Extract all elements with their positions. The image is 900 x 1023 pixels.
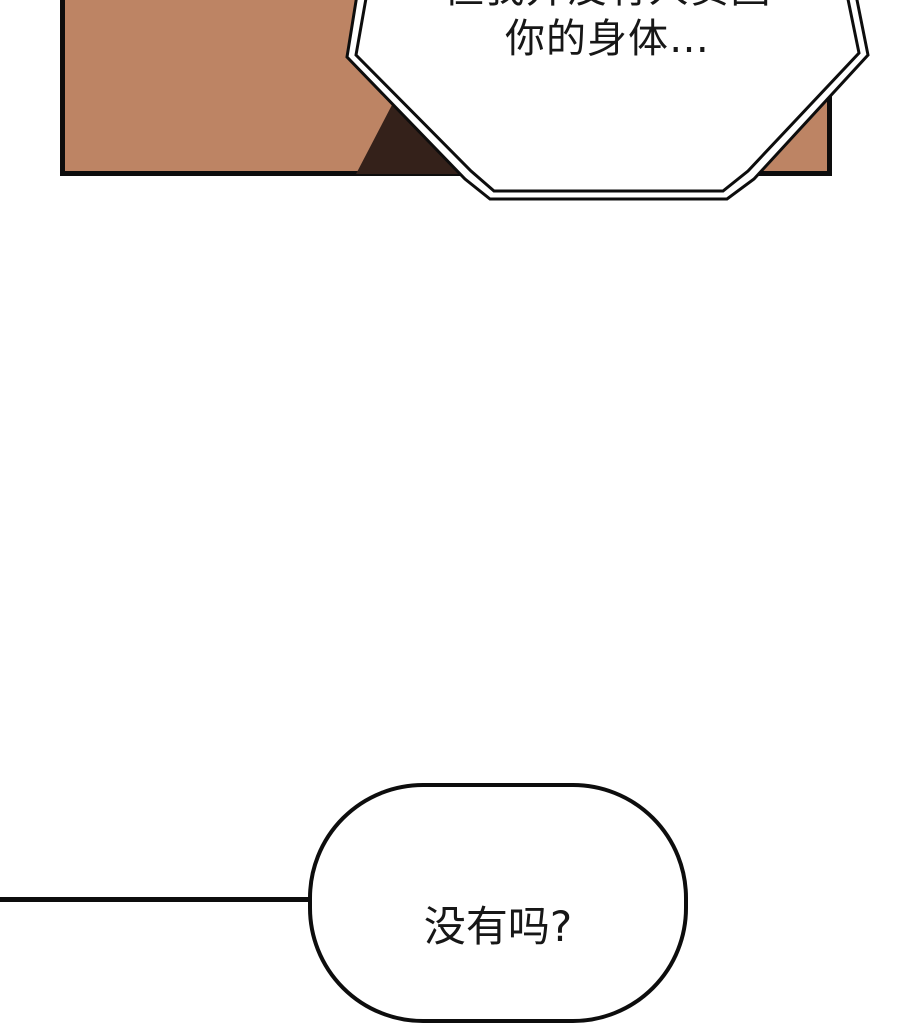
dialogue-line-2: 你的身体…: [430, 14, 785, 64]
octagon-bubble-dialogue: 但我并没有人贪图 你的身体…: [430, 0, 785, 64]
rounded-bubble-dialogue: 没有吗?: [312, 905, 684, 949]
dialogue-line-1: 但我并没有人贪图: [430, 0, 785, 14]
bubble-connector-line: [0, 897, 314, 902]
comic-page: { "page": { "background_color": "#ffffff…: [0, 0, 900, 988]
rounded-speech-bubble: 没有吗?: [308, 783, 688, 1023]
